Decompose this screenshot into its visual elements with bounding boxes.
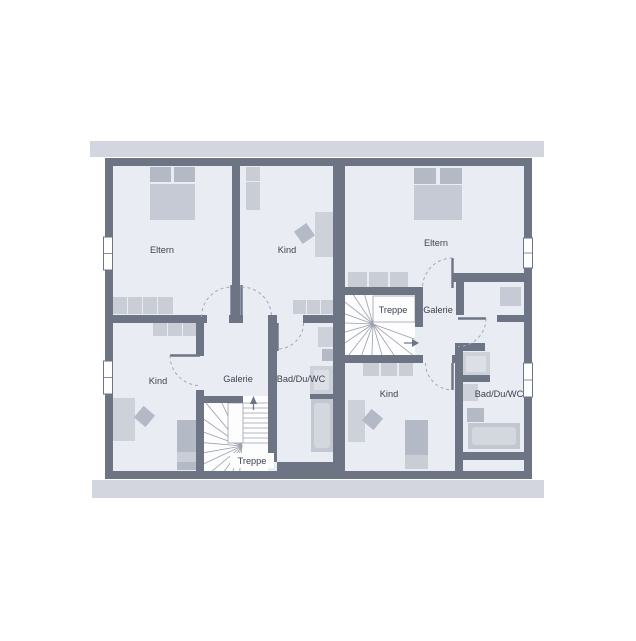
wall-segment [345,287,423,295]
furniture-item [113,398,135,441]
room-label: Galerie [423,305,453,315]
furniture-item [399,363,413,376]
room-label: Bad/Du/WC [277,374,326,384]
wall-segment [310,394,333,399]
window [104,237,113,270]
furniture-item [405,420,428,455]
furniture-item [128,297,142,314]
furniture-item [318,327,333,347]
wall-segment [333,166,345,471]
wall-segment [196,323,204,356]
roof-band [92,480,544,498]
furniture-item [293,300,306,314]
room-label: Treppe [238,456,267,466]
furniture-item [405,455,428,469]
furniture-item [143,297,157,314]
furniture-item [363,363,379,376]
wall-segment [105,166,113,471]
floor-plan: ElternKindElternKindGalerieBad/Du/WCTrep… [0,0,636,636]
furniture-item [150,167,171,182]
furniture-item [466,356,486,372]
window [104,361,113,394]
furniture-item [168,323,182,336]
furniture-item [314,403,330,448]
room-label: Treppe [379,305,408,315]
furniture-item [467,408,484,422]
furniture-item [348,272,367,287]
roof-band [90,141,544,157]
furniture-item [390,272,408,287]
room-label: Kind [380,389,398,399]
wall-segment [497,315,525,322]
window [524,363,533,397]
window [524,238,533,268]
wall-segment [456,275,464,315]
furniture-item [321,300,333,314]
furniture-item [183,323,197,336]
furniture-item [177,420,197,452]
wall-segment [113,315,207,323]
stair-landing [228,403,243,443]
furniture-item [113,297,127,314]
furniture-item [158,297,173,314]
furniture-item [246,167,260,181]
room-label: Kind [149,376,167,386]
wall-segment [196,396,243,403]
furniture-item [315,212,333,257]
wall-segment [268,315,277,323]
furniture-item [381,363,397,376]
furniture-item [177,452,197,462]
furniture-item [246,182,260,210]
furniture-item [348,400,365,442]
furniture-item [414,168,436,184]
room-label: Bad/Du/WC [475,389,524,399]
room-label: Kind [278,245,296,255]
room-label: Eltern [150,245,174,255]
wall-segment [268,323,277,462]
wall-segment [105,158,532,166]
wall-segment [455,452,525,460]
wall-segment [303,315,333,323]
furniture-item [177,462,197,470]
wall-segment [345,355,423,363]
furniture-item [307,300,320,314]
wall-segment [415,287,423,327]
furniture-item [414,185,462,220]
furniture-item [472,427,516,445]
room-label: Galerie [223,374,253,384]
wall-segment [105,471,532,479]
wall-segment [457,343,485,351]
furniture-item [369,272,388,287]
furniture-item [153,323,167,336]
furniture-item [500,287,521,306]
furniture-item [150,184,195,220]
furniture-item [322,349,333,361]
wall-segment [455,375,490,382]
wall-segment [524,166,532,471]
wall-segment [232,166,240,323]
furniture-item [174,167,195,182]
floor-plan-svg: ElternKindElternKindGalerieBad/Du/WCTrep… [0,0,636,636]
furniture-item [440,168,462,184]
wall-segment [277,462,333,471]
room-label: Eltern [424,238,448,248]
wall-segment [455,343,463,471]
